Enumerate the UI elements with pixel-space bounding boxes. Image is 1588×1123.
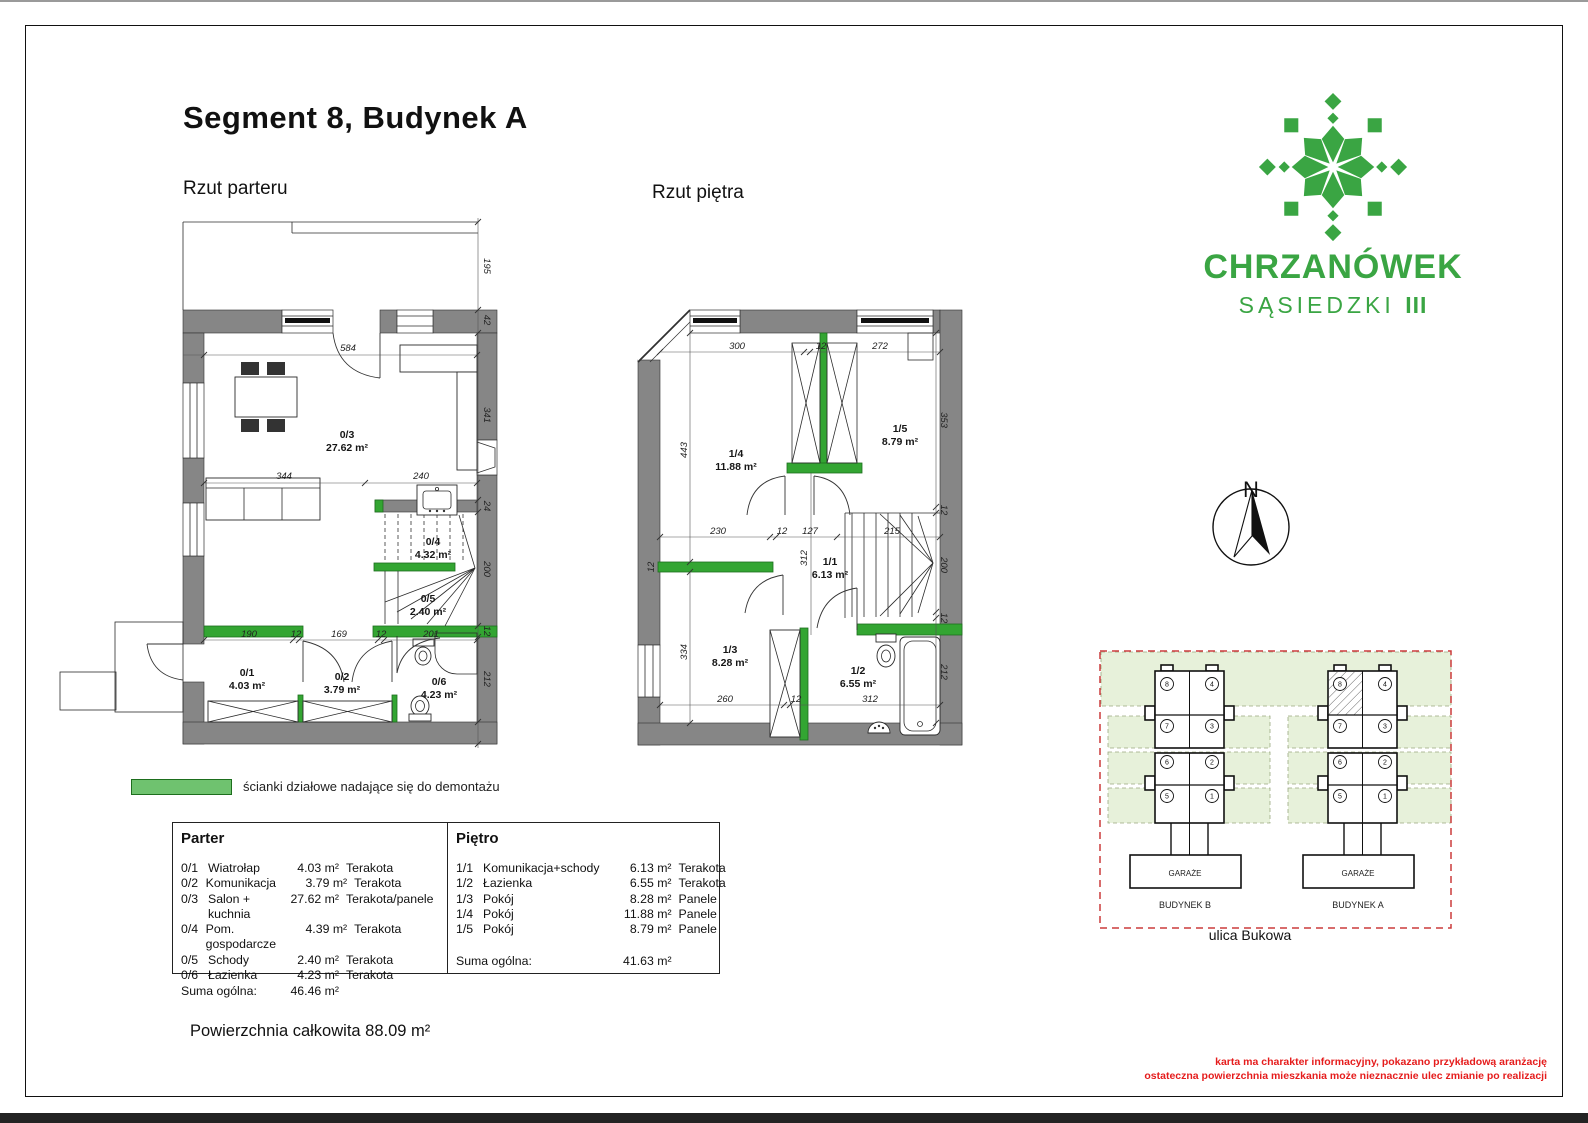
upper-floor-label: Rzut piętra xyxy=(652,182,744,204)
room-area: 27.62 m² xyxy=(326,442,369,454)
sheet-top-edge xyxy=(0,0,1588,2)
floor-plan-sheet: Segment 8, Budynek A Rzut parteru Rzut p… xyxy=(0,0,1588,1123)
cell-area: 8.28 m² xyxy=(600,892,672,907)
table-row: 1/5 Pokój 8.79 m² Panele xyxy=(456,922,750,937)
cell-id: 0/2 xyxy=(181,876,206,891)
unit-number: 6 xyxy=(1165,760,1169,767)
cell-area: 4.03 m² xyxy=(261,861,339,876)
table-pietro: Piętro 1/1 Komunikacja+schody 6.13 m² Te… xyxy=(447,823,758,973)
chair xyxy=(267,419,285,432)
cell-name: Pokój xyxy=(483,892,600,907)
cell-name: Łazienka xyxy=(208,968,261,983)
dim-label: 212 xyxy=(938,663,949,681)
dim-label: 12 xyxy=(938,505,949,516)
dim-label: 334 xyxy=(679,644,690,660)
legend-text: ścianki działowe nadające się do demonta… xyxy=(243,779,500,794)
cell-id: 1/3 xyxy=(456,892,483,907)
page-title: Segment 8, Budynek A xyxy=(183,100,528,136)
north-compass: N xyxy=(1196,470,1311,585)
disclaimer-line2: ostateczna powierzchnia mieszkania może … xyxy=(1000,1070,1547,1084)
dim-label: 215 xyxy=(883,526,901,537)
dim-label: 42 xyxy=(481,315,492,326)
cell-name: Pom. gospodarcze xyxy=(206,922,276,953)
wardrobe xyxy=(770,630,800,737)
legend: ścianki działowe nadające się do demonta… xyxy=(131,779,500,794)
room-area: 8.28 m² xyxy=(712,657,749,669)
dim-label: 272 xyxy=(871,341,889,352)
chrzanowek-logo-text: CHRZANÓWEK SĄSIEDZKI III xyxy=(1158,248,1508,319)
dim-label: 12 xyxy=(777,526,788,537)
cell-floor: Panele xyxy=(672,922,750,937)
cell-area: 4.39 m² xyxy=(276,922,347,953)
cell-floor: Terakota xyxy=(339,861,439,876)
unit-number: 3 xyxy=(1383,724,1387,731)
table-row: 0/4 Pom. gospodarcze 4.39 m² Terakota xyxy=(181,922,439,953)
table-header: Parter xyxy=(181,830,439,847)
cell-area: 8.79 m² xyxy=(600,922,672,937)
cell-name: Wiatrołap xyxy=(208,861,261,876)
cell-floor: Terakota xyxy=(672,876,750,891)
unit-number: 7 xyxy=(1165,724,1169,731)
room-area: 4.23 m² xyxy=(421,689,458,701)
cell-area: 6.13 m² xyxy=(600,861,672,876)
sofa xyxy=(206,478,320,520)
disclaimer: karta ma charakter informacyjny, pokazan… xyxy=(1000,1056,1547,1084)
dim-label: 260 xyxy=(716,694,734,705)
unit-number: 7 xyxy=(1338,724,1342,731)
kitchen-counter xyxy=(457,372,477,470)
wardrobe xyxy=(303,701,392,722)
room-area: 6.13 m² xyxy=(812,569,849,581)
dim-label: 230 xyxy=(709,526,727,537)
dim-label: 212 xyxy=(481,670,492,688)
cell-area: 4.23 m² xyxy=(261,968,339,983)
room-area: 6.55 m² xyxy=(840,678,877,690)
cell-name: Salon + kuchnia xyxy=(208,892,261,923)
room-id: 0/6 xyxy=(432,676,447,688)
cell-area: 6.55 m² xyxy=(600,876,672,891)
dim-label: 240 xyxy=(412,471,430,482)
shower xyxy=(435,633,477,674)
cell-name: Pokój xyxy=(483,922,600,937)
cell-floor: Terakota xyxy=(347,922,439,953)
room-area: 4.03 m² xyxy=(229,680,266,692)
room-area: 2.40 m² xyxy=(410,606,447,618)
unit-number: 8 xyxy=(1165,682,1169,689)
room-id: 1/1 xyxy=(823,556,838,568)
dim-label: 195 xyxy=(481,258,492,275)
garage-label: GARAŻE xyxy=(1342,869,1375,878)
cell-area: 3.79 m² xyxy=(276,876,347,891)
toilet xyxy=(876,634,896,667)
dim-label: 341 xyxy=(481,407,492,423)
table-row: 0/6 Łazienka 4.23 m² Terakota xyxy=(181,968,439,983)
room-area: 11.88 m² xyxy=(715,461,757,473)
unit-number: 4 xyxy=(1210,682,1214,689)
ground-floor-label: Rzut parteru xyxy=(183,178,288,200)
table-row: 1/1 Komunikacja+schody 6.13 m² Terakota xyxy=(456,861,750,876)
terrace-outline xyxy=(183,222,478,310)
dim-label: 12 xyxy=(646,561,657,572)
chair xyxy=(241,419,259,432)
unit-number: 5 xyxy=(1165,794,1169,801)
cell-name: Komunikacja xyxy=(206,876,276,891)
dimension-lines: 584 344 240 190 12 169 12 201 195 42 341… xyxy=(183,218,492,748)
kitchen-counter xyxy=(400,345,477,372)
cell-floor: Panele xyxy=(672,907,750,922)
cell-area: 11.88 m² xyxy=(600,907,672,922)
unit-number: 1 xyxy=(1210,794,1214,801)
unit-number: 5 xyxy=(1338,794,1342,801)
sum-value: 41.63 m² xyxy=(600,953,672,969)
unit-number: 2 xyxy=(1210,760,1214,767)
street-label: ulica Bukowa xyxy=(1209,927,1292,943)
dim-label: 12 xyxy=(938,613,949,624)
dim-label: 12 xyxy=(376,629,387,640)
room-id: 0/1 xyxy=(240,667,255,679)
room-id: 0/4 xyxy=(426,536,441,548)
unit-number: 6 xyxy=(1338,760,1342,767)
room-area: 8.79 m² xyxy=(882,436,919,448)
bathtub xyxy=(900,637,940,735)
building-a-label: BUDYNEK A xyxy=(1332,900,1384,910)
building-b-label: BUDYNEK B xyxy=(1159,900,1211,910)
table-row: 0/1 Wiatrołap 4.03 m² Terakota xyxy=(181,861,439,876)
total-area-text: Powierzchnia całkowita 88.09 m² xyxy=(190,1022,430,1041)
room-id: 1/4 xyxy=(729,448,744,460)
dim-label: 353 xyxy=(938,412,949,429)
room-id: 0/3 xyxy=(340,429,355,441)
ground-floor-plan: 584 344 240 190 12 169 12 201 195 42 341… xyxy=(55,212,525,757)
dim-label: 12 xyxy=(481,626,492,637)
table-parter: Parter 0/1 Wiatrołap 4.03 m² Terakota 0/… xyxy=(173,823,447,973)
dim-label: 300 xyxy=(729,341,746,352)
room-id: 1/2 xyxy=(851,665,866,677)
table-sum-row: Suma ogólna: 46.46 m² xyxy=(181,983,439,999)
cell-area: 2.40 m² xyxy=(261,953,339,968)
logo-sub-word: SĄSIEDZKI xyxy=(1239,292,1395,318)
area-tables: Parter 0/1 Wiatrołap 4.03 m² Terakota 0/… xyxy=(172,822,720,974)
table-row: 1/3 Pokój 8.28 m² Panele xyxy=(456,892,750,907)
room-id: 1/5 xyxy=(893,423,908,435)
room-id: 1/3 xyxy=(723,644,738,656)
table-row: 1/4 Pokój 11.88 m² Panele xyxy=(456,907,750,922)
partition-swatch xyxy=(131,779,232,795)
cell-id: 0/3 xyxy=(181,892,208,923)
cell-floor: Terakota xyxy=(339,953,439,968)
logo-name: CHRZANÓWEK xyxy=(1158,248,1508,287)
cell-name: Schody xyxy=(208,953,261,968)
garage-label: GARAŻE xyxy=(1169,869,1202,878)
cell-name: Pokój xyxy=(483,907,600,922)
table-header: Piętro xyxy=(456,830,750,847)
disclaimer-line1: karta ma charakter informacyjny, pokazan… xyxy=(1000,1056,1547,1070)
cell-floor: Panele xyxy=(672,892,750,907)
table-row: 1/2 Łazienka 6.55 m² Terakota xyxy=(456,876,750,891)
dim-label: 24 xyxy=(481,500,492,512)
entry-porch xyxy=(60,622,183,712)
dining-table xyxy=(235,377,297,417)
starburst-icon xyxy=(1259,93,1407,241)
toilet xyxy=(413,639,434,665)
chair xyxy=(267,362,285,375)
cell-id: 1/4 xyxy=(456,907,483,922)
cell-id: 1/2 xyxy=(456,876,483,891)
cell-id: 0/6 xyxy=(181,968,208,983)
dim-label: 12 xyxy=(291,629,302,640)
room-area: 3.79 m² xyxy=(324,684,361,696)
unit-number: 1 xyxy=(1383,794,1387,801)
table-row: 0/2 Komunikacja 3.79 m² Terakota xyxy=(181,876,439,891)
unit-number: 4 xyxy=(1383,682,1387,689)
unit-number: 8 xyxy=(1338,682,1342,689)
site-plan: GARAŻE BUDYNEK B 8 4 7 3 6 2 5 1 xyxy=(1083,646,1513,946)
cell-name: Komunikacja+schody xyxy=(483,861,600,876)
logo-roman-numeral: III xyxy=(1405,292,1427,318)
dim-label: 200 xyxy=(938,556,949,574)
sheet-bottom-edge xyxy=(0,1113,1588,1123)
table-row: 0/5 Schody 2.40 m² Terakota xyxy=(181,953,439,968)
table-row: 0/3 Salon + kuchnia 27.62 m² Terakota/pa… xyxy=(181,892,439,923)
chair xyxy=(241,362,259,375)
dim-label: 344 xyxy=(276,471,292,482)
cell-id: 1/5 xyxy=(456,922,483,937)
cell-floor: Terakota xyxy=(339,968,439,983)
sum-label: Suma ogólna: xyxy=(181,983,261,999)
dim-label: 169 xyxy=(331,629,348,640)
dim-label: 200 xyxy=(481,560,492,578)
cell-floor: Terakota/panele xyxy=(339,892,439,923)
room-area: 4.32 m² xyxy=(415,549,452,561)
cell-floor: Terakota xyxy=(672,861,750,876)
unit-number: 3 xyxy=(1210,724,1214,731)
table-sum-row: Suma ogólna: 41.63 m² xyxy=(456,953,750,969)
unit-number: 2 xyxy=(1383,760,1387,767)
dim-label: 127 xyxy=(802,526,819,537)
dim-label: 12 xyxy=(816,341,827,352)
wardrobe xyxy=(208,701,298,722)
cell-name: Łazienka xyxy=(483,876,600,891)
dim-label: 584 xyxy=(340,343,356,354)
dim-label: 190 xyxy=(241,629,258,640)
upper-floor-plan: 300 12 272 230 12 127 215 260 12 312 443… xyxy=(630,300,975,770)
compass-needle xyxy=(1252,490,1270,555)
logo-subtitle: SĄSIEDZKI III xyxy=(1158,292,1508,319)
highlighted-segment-8 xyxy=(1328,671,1363,715)
chrzanowek-logo-icon xyxy=(1258,92,1408,242)
sum-label: Suma ogólna: xyxy=(456,953,600,969)
dim-label: 312 xyxy=(862,694,879,705)
cell-id: 0/5 xyxy=(181,953,208,968)
corner-bay-window xyxy=(638,310,690,362)
room-id: 0/5 xyxy=(421,593,436,605)
cell-area: 27.62 m² xyxy=(261,892,339,923)
dim-label: 201 xyxy=(422,629,439,640)
closet xyxy=(908,333,933,360)
dim-label: 312 xyxy=(799,549,810,566)
room-id: 0/2 xyxy=(335,671,350,683)
cell-id: 0/1 xyxy=(181,861,208,876)
dim-label: 443 xyxy=(679,441,690,458)
dim-label: 12 xyxy=(791,694,802,705)
gardens xyxy=(1101,652,1451,823)
sum-value: 46.46 m² xyxy=(261,983,339,999)
furniture xyxy=(206,345,477,722)
cell-id: 1/1 xyxy=(456,861,483,876)
kitchen-sink xyxy=(417,485,457,515)
cell-id: 0/4 xyxy=(181,922,206,953)
cell-floor: Terakota xyxy=(347,876,439,891)
